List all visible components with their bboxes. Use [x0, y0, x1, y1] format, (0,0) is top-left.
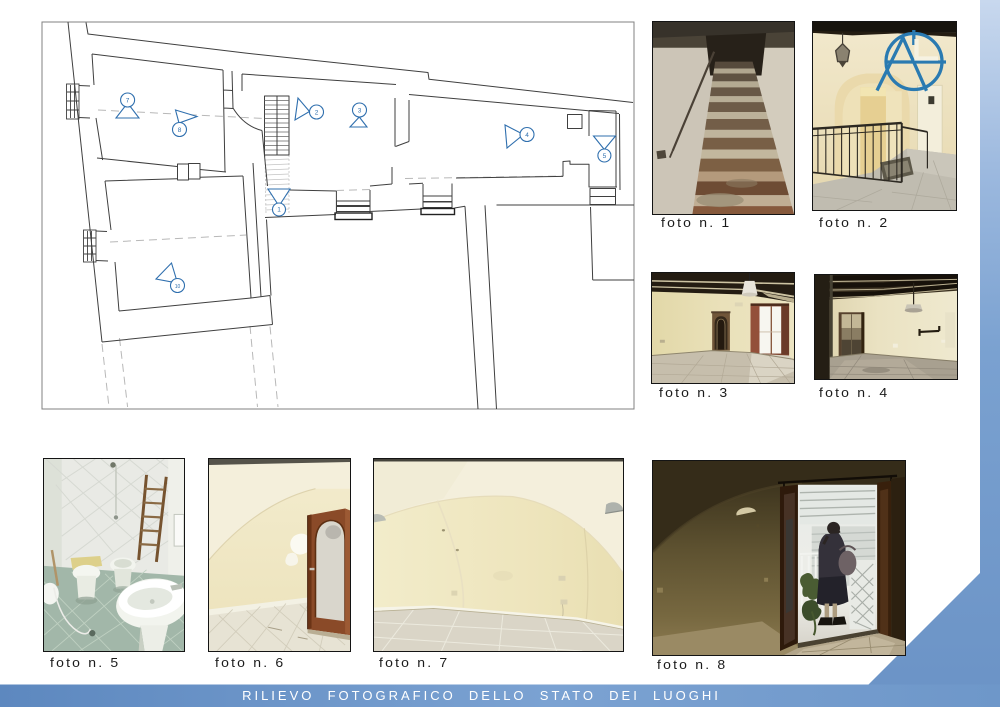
svg-text:10: 10 [175, 284, 181, 290]
svg-text:1: 1 [277, 207, 281, 214]
svg-text:7: 7 [126, 97, 130, 104]
svg-text:3: 3 [358, 107, 362, 114]
svg-text:5: 5 [603, 153, 607, 160]
svg-text:2: 2 [315, 109, 319, 116]
svg-text:8: 8 [178, 127, 182, 134]
svg-text:4: 4 [525, 132, 529, 139]
